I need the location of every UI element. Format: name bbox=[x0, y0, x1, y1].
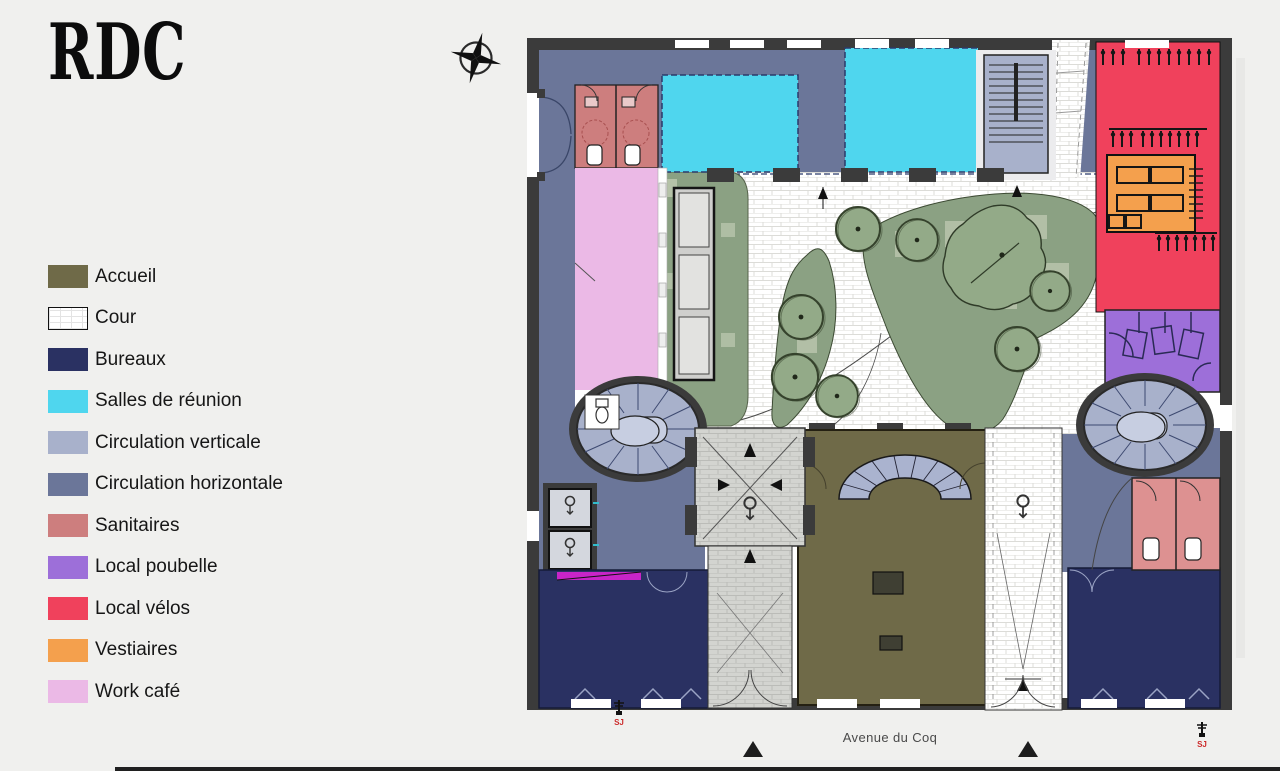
standpipe-marker-west: SJ bbox=[609, 700, 629, 727]
entrance-corridor-east bbox=[985, 428, 1062, 710]
legend-label: Sanitaires bbox=[95, 515, 180, 537]
legend-label: Local vélos bbox=[95, 598, 190, 620]
legend-label: Bureaux bbox=[95, 349, 166, 371]
standpipe-marker-east: SJ bbox=[1192, 722, 1212, 749]
room-stairwell-north bbox=[976, 50, 1056, 180]
legend-swatch-circh bbox=[48, 473, 88, 496]
street-label: Avenue du Coq bbox=[790, 730, 990, 745]
legend-label: Salles de réunion bbox=[95, 390, 242, 412]
page-title: RDC bbox=[48, 14, 186, 92]
legend-label: Vestiaires bbox=[95, 639, 177, 661]
room-bureaux-se bbox=[1068, 568, 1220, 708]
legend-item-workcafe: Work café bbox=[48, 671, 283, 713]
legend-item-velos: Local vélos bbox=[48, 588, 283, 630]
stair-oval-east bbox=[1080, 377, 1210, 473]
room-work-cafe bbox=[575, 168, 667, 390]
marker-label: SJ bbox=[609, 719, 629, 727]
legend-swatch-bureaux bbox=[48, 348, 88, 371]
legend-swatch-sanitaires bbox=[48, 514, 88, 537]
stair-oval-west bbox=[573, 380, 703, 478]
legend-item-circh: Circulation horizontale bbox=[48, 464, 283, 506]
legend-label: Local poubelle bbox=[95, 556, 218, 578]
sidewalk-strip bbox=[1236, 58, 1245, 658]
legend-label: Cour bbox=[95, 307, 136, 329]
legend-label: Circulation horizontale bbox=[95, 473, 283, 495]
legend: Accueil Cour Bureaux Salles de réunion C… bbox=[48, 256, 283, 713]
legend-swatch-accueil bbox=[48, 265, 88, 288]
room-vestiaires bbox=[1107, 155, 1203, 232]
legend-item-accueil: Accueil bbox=[48, 256, 283, 298]
legend-swatch-velos bbox=[48, 597, 88, 620]
legend-swatch-reunion bbox=[48, 390, 88, 413]
legend-label: Circulation verticale bbox=[95, 432, 261, 454]
room-sanitaires-nw bbox=[575, 85, 658, 168]
entrance-arrow-east bbox=[1018, 741, 1038, 757]
legend-label: Accueil bbox=[95, 266, 156, 288]
legend-item-circv: Circulation verticale bbox=[48, 422, 283, 464]
legend-label: Work café bbox=[95, 681, 180, 703]
legend-item-poubelle: Local poubelle bbox=[48, 547, 283, 589]
legend-swatch-poubelle bbox=[48, 556, 88, 579]
standpipe-icon bbox=[613, 700, 625, 715]
bottom-edge-strip bbox=[115, 767, 1280, 771]
compass-icon bbox=[446, 28, 506, 88]
legend-swatch-vestiaires bbox=[48, 639, 88, 662]
legend-item-sanitaires: Sanitaires bbox=[48, 505, 283, 547]
legend-swatch-cour bbox=[48, 307, 88, 330]
legend-item-bureaux: Bureaux bbox=[48, 339, 283, 381]
entrance-arrow-west bbox=[743, 741, 763, 757]
room-bureaux-sw bbox=[539, 570, 711, 708]
floor-plan bbox=[525, 33, 1235, 713]
marker-label: SJ bbox=[1192, 741, 1212, 749]
room-accueil bbox=[798, 430, 988, 705]
standpipe-icon bbox=[1196, 722, 1208, 737]
legend-item-reunion: Salles de réunion bbox=[48, 381, 283, 423]
legend-swatch-workcafe bbox=[48, 680, 88, 703]
legend-swatch-circv bbox=[48, 431, 88, 454]
legend-item-cour: Cour bbox=[48, 298, 283, 340]
legend-item-vestiaires: Vestiaires bbox=[48, 630, 283, 672]
